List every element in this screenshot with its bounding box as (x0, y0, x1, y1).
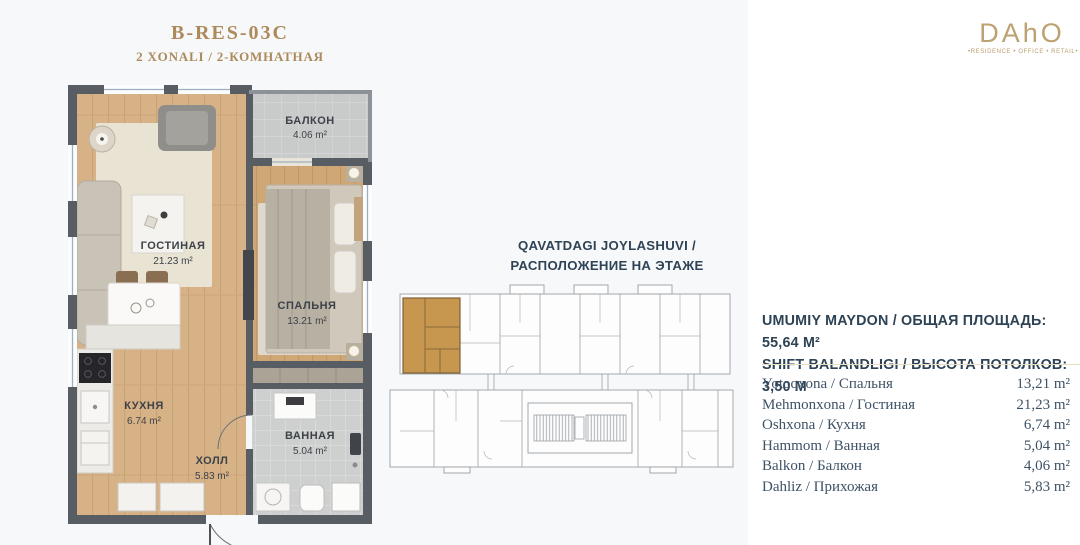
room-label: Balkon / Балкон (762, 456, 862, 477)
room-value: 21,23 m² (1016, 395, 1070, 416)
bed-pillow (334, 251, 356, 293)
label-living: ГОСТИНАЯ (141, 240, 206, 252)
brand-logo-tagline: •RESIDENCE • OFFICE • RETAIL• (968, 49, 1076, 55)
hall-closet (160, 483, 204, 511)
toilet (300, 485, 324, 511)
table-row: Dahliz / Прихожая 5,83 m² (762, 477, 1070, 498)
room-value: 4,06 m² (1024, 456, 1070, 477)
room-value: 5,83 m² (1024, 477, 1070, 498)
floor-plate-diagram (388, 281, 736, 477)
table-row: Yotoqxona / Спальня 13,21 m² (762, 374, 1070, 395)
label-kitchen: КУХНЯ (124, 400, 164, 412)
label-bedroom-area: 13.21 m² (287, 316, 327, 327)
brochure-page: B-RES-03C 2 XONALI / 2-КОМНАТНАЯ DAhO •R… (0, 0, 1080, 545)
table-row: Hammom / Ванная 5,04 m² (762, 436, 1070, 457)
highlighted-unit (403, 298, 460, 373)
sliding-door (243, 250, 254, 320)
label-hall: ХОЛЛ (196, 455, 229, 467)
brand-logo: DAhO •RESIDENCE • OFFICE • RETAIL• (968, 18, 1076, 55)
towel-radiator (350, 433, 361, 455)
label-balcony-area: 4.06 m² (293, 130, 328, 141)
page-title: B-RES-03C (80, 22, 380, 45)
fridge (81, 431, 109, 465)
divider-line (762, 364, 1080, 365)
room-label: Oshxona / Кухня (762, 415, 866, 436)
kitchen-counter (86, 325, 180, 349)
stove (79, 353, 111, 383)
bed-pillow (334, 203, 356, 245)
label-bedroom: СПАЛЬНЯ (278, 300, 337, 312)
floor-location-line1: QAVATDAGI JOYLASHUVI / (462, 236, 752, 256)
entrance-door-arc (210, 524, 258, 545)
page-subtitle: 2 XONALI / 2-КОМНАТНАЯ (80, 49, 380, 65)
room-label: Mehmonxona / Гостиная (762, 395, 915, 416)
brand-logo-word: DAhO (968, 18, 1076, 49)
label-bathroom-area: 5.04 m² (293, 446, 328, 457)
label-bathroom: ВАННАЯ (285, 430, 335, 442)
bedroom-wardrobe (354, 197, 363, 241)
bathroom-sink (332, 483, 360, 511)
hall-closet (118, 483, 156, 511)
label-living-area: 21.23 m² (153, 256, 193, 267)
boiler (274, 393, 316, 419)
room-label: Hammom / Ванная (762, 436, 880, 457)
table-row: Oshxona / Кухня 6,74 m² (762, 415, 1070, 436)
page-title-block: B-RES-03C 2 XONALI / 2-КОМНАТНАЯ (80, 22, 380, 65)
room-value: 5,04 m² (1024, 436, 1070, 457)
room-value: 6,74 m² (1024, 415, 1070, 436)
washing-machine (256, 483, 290, 511)
summary-total-area: UMUMIY MAYDON / ОБЩАЯ ПЛОЩАДЬ: 55,64 М² (762, 310, 1080, 354)
room-label: Dahliz / Прихожая (762, 477, 878, 498)
room-label: Yotoqxona / Спальня (762, 374, 893, 395)
label-balcony: БАЛКОН (285, 115, 335, 127)
room-value: 13,21 m² (1016, 374, 1070, 395)
floor-location-line2: РАСПОЛОЖЕНИЕ НА ЭТАЖЕ (462, 256, 752, 276)
label-kitchen-area: 6.74 m² (127, 416, 162, 427)
floor-location-heading: QAVATDAGI JOYLASHUVI / РАСПОЛОЖЕНИЕ НА Э… (462, 236, 752, 276)
table-row: Mehmonxona / Гостиная 21,23 m² (762, 395, 1070, 416)
table-row: Balkon / Балкон 4,06 m² (762, 456, 1070, 477)
label-hall-area: 5.83 m² (195, 471, 230, 482)
rooms-table: Yotoqxona / Спальня 13,21 m² Mehmonxona … (762, 374, 1070, 497)
apartment-floorplan: БАЛКОН 4.06 m² ГОСТИНАЯ 21.23 m² СПАЛЬНЯ… (60, 85, 380, 545)
